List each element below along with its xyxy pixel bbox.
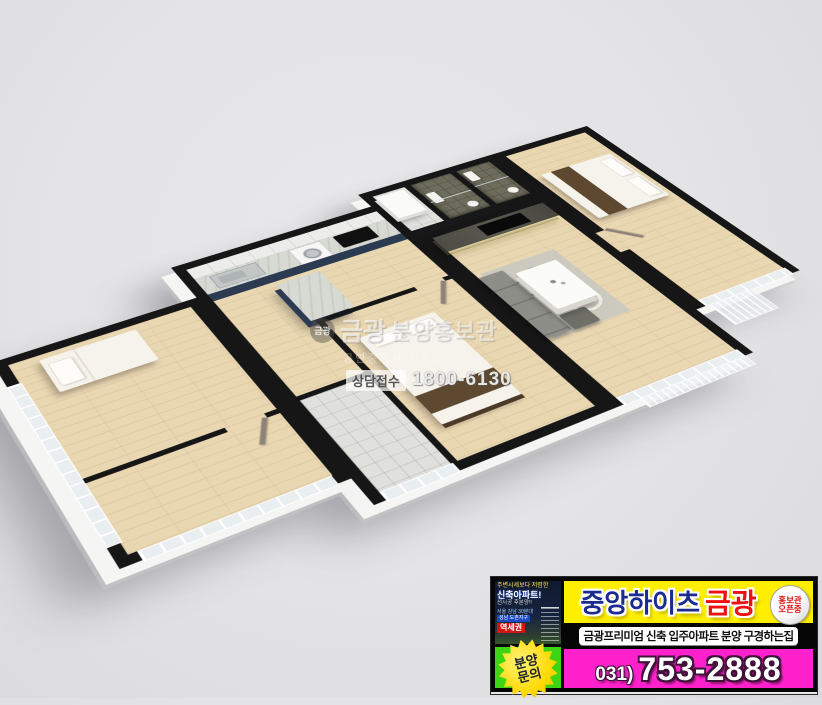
ad-subtitle: 금광프리미엄 신축 입주아파트 분양 구경하는집 — [579, 627, 799, 645]
ad-banner: 주변시세보다 저렴한 신축아파트! 선시공 후분양!! 서울 강남 30분대 성… — [491, 577, 817, 694]
table-bottle-2 — [560, 281, 567, 285]
thumb-caption-main: 신축아파트! — [497, 590, 541, 600]
ad-banner-left-column: 주변시세보다 저렴한 신축아파트! 선시공 후분양!! 서울 강남 30분대 성… — [495, 581, 561, 688]
thumb-caption-top: 주변시세보다 저렴한 — [497, 583, 548, 590]
ad-subtitle-bar: 금광프리미엄 신축 입주아파트 분양 구경하는집 — [564, 626, 813, 646]
thumb-caption-location2: 성남 도촌지구 — [497, 615, 530, 622]
open-badge: 홍보관 오픈중 — [770, 585, 810, 625]
thumb-caption-sub: 선시공 후분양!! — [497, 600, 532, 607]
apartment-render-canvas: { "scene": { "description": "3D isometri… — [0, 0, 822, 698]
ad-thumbnail: 주변시세보다 저렴한 신축아파트! 선시공 후분양!! 서울 강남 30분대 성… — [495, 581, 561, 644]
phone-number: 753-2888 — [638, 651, 781, 688]
ad-title-accent: 금광 — [705, 582, 757, 622]
bathroom-2-toilet — [505, 186, 521, 194]
floorplan-plane — [0, 126, 822, 600]
floorplan-3d-scene — [0, 0, 822, 646]
bedroom2-pillow-2 — [401, 317, 439, 336]
open-badge-line2: 오픈중 — [778, 605, 801, 614]
thumb-building-image — [541, 607, 559, 644]
ad-banner-right-column: 중앙하이츠 금광 홍보관 오픈중 금광프리미엄 신축 입주아파트 분양 구경하는… — [564, 581, 813, 688]
starburst-line2: 문의 — [516, 666, 543, 685]
ad-title-bar: 중앙하이츠 금광 홍보관 오픈중 — [564, 581, 813, 623]
bedroom2-door-leaf — [441, 281, 446, 304]
bathroom-1-toilet — [465, 200, 481, 208]
ad-title-main: 중앙하이츠 — [580, 583, 700, 620]
ad-phone-bar: 031) 753-2888 — [564, 649, 813, 688]
table-bottle-1 — [549, 279, 557, 283]
thumb-caption-station: 역세권 — [497, 623, 525, 633]
phone-prefix: 031) — [595, 664, 633, 686]
